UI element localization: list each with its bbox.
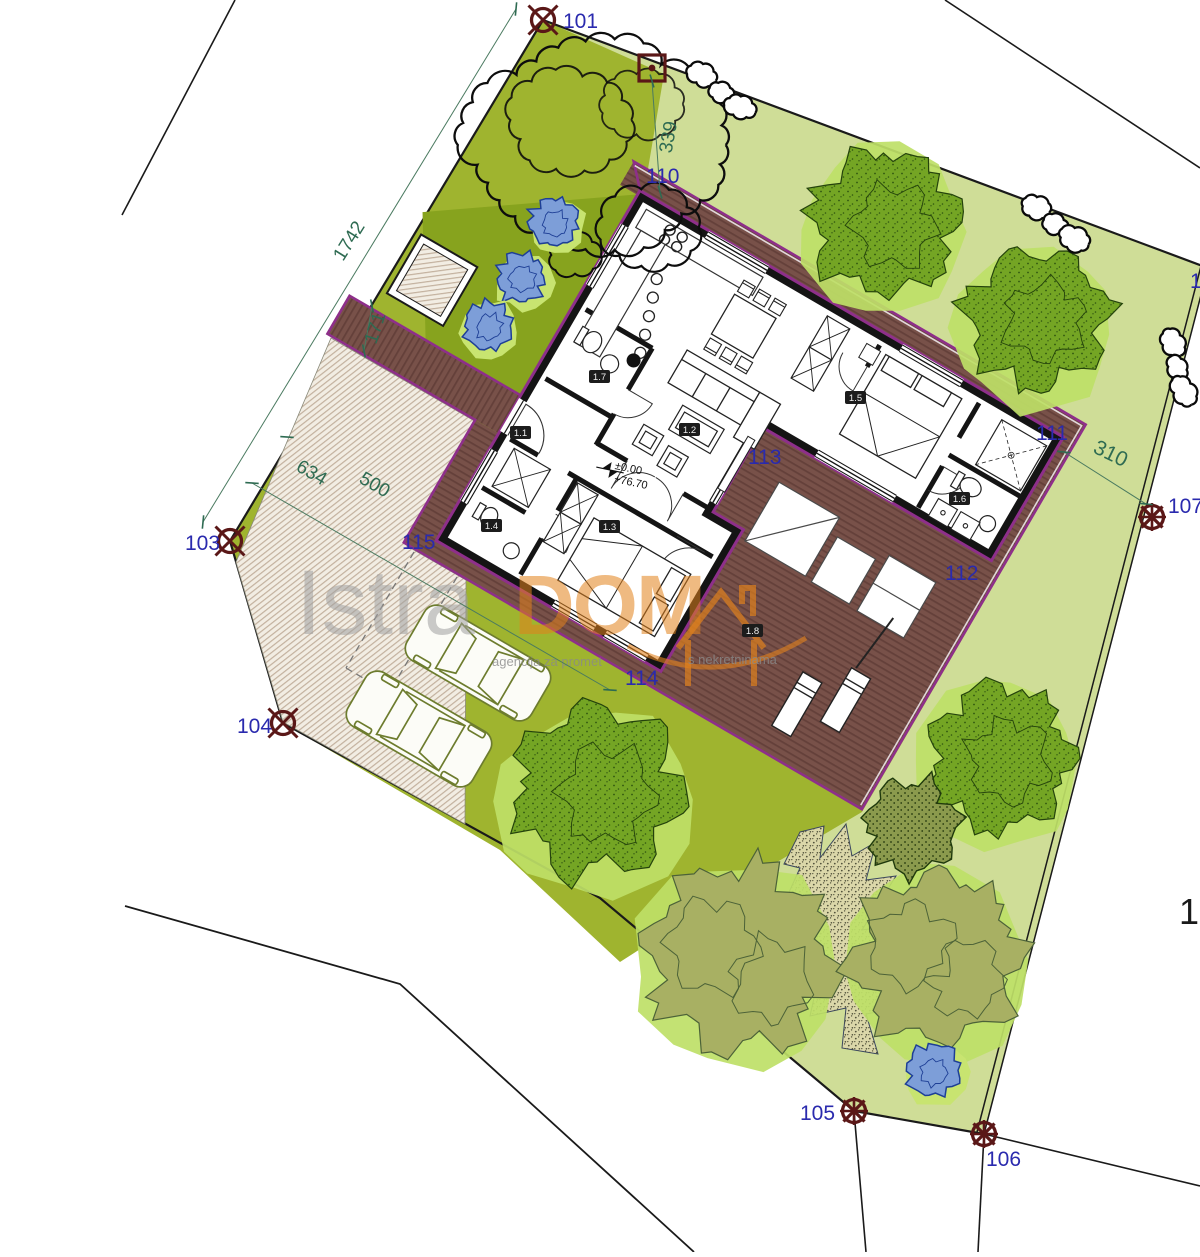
svg-text:106: 106 [986,1148,1021,1171]
svg-text:111: 111 [1036,422,1068,445]
svg-text:103: 103 [185,532,220,555]
svg-text:107: 107 [1168,495,1200,518]
svg-text:1.6: 1.6 [953,494,966,505]
svg-text:112: 112 [945,562,978,585]
svg-text:s nekretninama: s nekretninama [688,652,778,667]
svg-text:113: 113 [748,446,781,469]
svg-text:1.5: 1.5 [849,393,862,404]
svg-text:105: 105 [800,1102,835,1125]
svg-text:1: 1 [1190,270,1200,293]
svg-text:1.1: 1.1 [514,428,527,439]
svg-text:1.2: 1.2 [683,425,696,436]
svg-text:104: 104 [237,715,272,738]
svg-text:1.4: 1.4 [485,521,498,532]
svg-text:1.8: 1.8 [746,626,759,637]
svg-text:1.3: 1.3 [603,522,616,533]
svg-text:1: 1 [1179,891,1199,932]
svg-text:DOM: DOM [514,558,704,652]
svg-text:114: 114 [625,667,659,690]
svg-text:110: 110 [646,165,679,188]
svg-text:agencija za promet: agencija za promet [492,654,602,669]
svg-text:101: 101 [563,10,598,33]
svg-text:1.7: 1.7 [593,372,606,383]
svg-text:Istra: Istra [296,552,476,654]
svg-text:115: 115 [402,531,435,554]
